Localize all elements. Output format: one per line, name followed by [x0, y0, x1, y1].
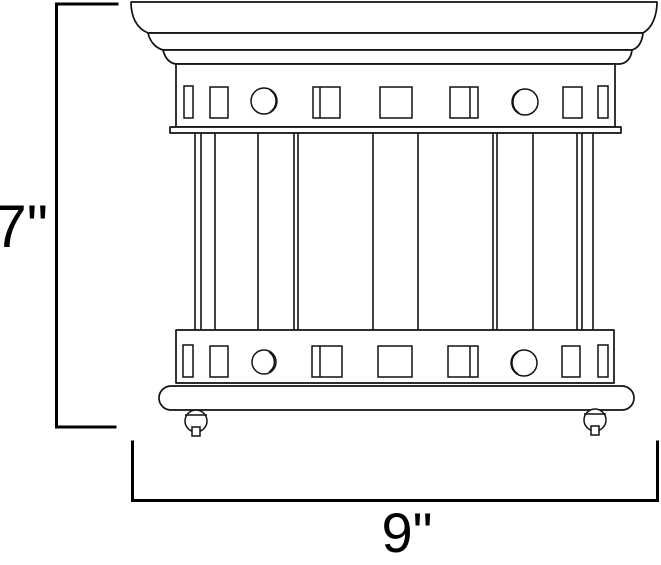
- bottom-band-body: [176, 330, 614, 383]
- base-plate: [159, 386, 634, 410]
- cap-tier-3: [163, 50, 632, 64]
- fixture-dimension-diagram: 7" 9": [0, 0, 661, 565]
- fixture-drawing: [131, 2, 657, 436]
- cage-bar: [493, 133, 533, 330]
- cage-bar: [373, 133, 418, 330]
- top-band: [170, 64, 621, 133]
- width-dimension-bracket: [133, 442, 658, 501]
- top-band-rim: [170, 127, 621, 133]
- cap-tier-2: [148, 33, 643, 50]
- diagram-canvas: 7" 9": [0, 0, 661, 565]
- screw-slot: [591, 426, 599, 435]
- height-dimension-label: 7": [0, 193, 48, 260]
- cage-bars: [195, 133, 593, 330]
- cage-bar: [258, 133, 298, 330]
- width-dimension-label: 9": [381, 501, 432, 564]
- screw-slot: [192, 427, 200, 436]
- right-thumb-screw: [584, 409, 606, 435]
- cap-tier-1: [131, 2, 657, 33]
- cage-bar: [195, 133, 215, 330]
- height-dimension-bracket: [57, 4, 118, 427]
- height-dimension: 7": [0, 4, 117, 427]
- left-thumb-screw: [185, 410, 207, 436]
- fixture-cap: [131, 2, 657, 64]
- bottom-band: [176, 330, 614, 383]
- cage-bar: [577, 133, 593, 330]
- width-dimension: 9": [133, 442, 658, 564]
